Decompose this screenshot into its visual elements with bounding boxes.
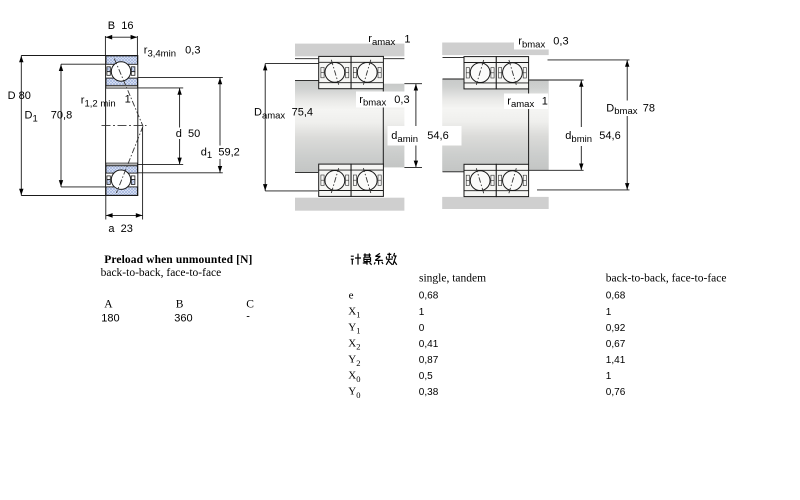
svg-text:X1: X1 bbox=[348, 305, 360, 319]
svg-text:d 50: d 50 bbox=[176, 128, 200, 140]
svg-text:70,8: 70,8 bbox=[51, 110, 72, 122]
svg-text:C: C bbox=[246, 298, 254, 310]
svg-text:back-to-back, face-to-face: back-to-back, face-to-face bbox=[101, 267, 222, 279]
svg-text:360: 360 bbox=[174, 313, 192, 325]
svg-text:1: 1 bbox=[125, 94, 131, 106]
svg-text:single, tandem: single, tandem bbox=[419, 272, 486, 284]
svg-text:ramax: ramax bbox=[368, 33, 395, 48]
svg-text:0,92: 0,92 bbox=[606, 323, 626, 334]
svg-text:0,68: 0,68 bbox=[419, 291, 439, 302]
svg-text:0,67: 0,67 bbox=[606, 339, 626, 350]
svg-text:Y2: Y2 bbox=[348, 354, 360, 368]
svg-text:X2: X2 bbox=[348, 338, 360, 352]
svg-text:0: 0 bbox=[419, 323, 425, 334]
svg-text:54,6: 54,6 bbox=[599, 130, 620, 142]
svg-text:A: A bbox=[104, 298, 113, 310]
svg-text:a 23: a 23 bbox=[108, 223, 132, 235]
svg-text:B 16: B 16 bbox=[108, 20, 134, 32]
svg-text:1: 1 bbox=[542, 95, 548, 107]
svg-text:back-to-back, face-to-face: back-to-back, face-to-face bbox=[606, 272, 727, 284]
svg-text:1: 1 bbox=[419, 307, 425, 318]
svg-text:e: e bbox=[349, 289, 354, 301]
svg-text:1: 1 bbox=[606, 371, 612, 382]
svg-text:Y0: Y0 bbox=[348, 386, 360, 400]
svg-text:54,6: 54,6 bbox=[427, 130, 448, 142]
svg-text:Y1: Y1 bbox=[348, 322, 360, 336]
svg-text:B: B bbox=[176, 298, 184, 310]
svg-text:75,4: 75,4 bbox=[292, 107, 313, 119]
svg-text:0,3: 0,3 bbox=[553, 36, 568, 48]
svg-text:0,87: 0,87 bbox=[419, 355, 439, 366]
svg-text:78: 78 bbox=[643, 102, 655, 114]
svg-text:0,41: 0,41 bbox=[419, 339, 439, 350]
svg-text:Damax: Damax bbox=[254, 107, 285, 122]
svg-text:0,68: 0,68 bbox=[606, 291, 626, 302]
svg-text:D1: D1 bbox=[25, 110, 38, 125]
svg-text:-: - bbox=[246, 311, 250, 323]
svg-text:1,41: 1,41 bbox=[606, 355, 626, 366]
svg-text:r3,4min 0,3: r3,4min 0,3 bbox=[144, 45, 201, 60]
svg-text:180: 180 bbox=[101, 313, 119, 325]
svg-text:0,38: 0,38 bbox=[419, 387, 439, 398]
svg-text:0,76: 0,76 bbox=[606, 387, 626, 398]
svg-text:0,5: 0,5 bbox=[419, 371, 433, 382]
svg-text:0,3: 0,3 bbox=[394, 94, 409, 106]
svg-text:1: 1 bbox=[606, 307, 612, 318]
svg-text:X0: X0 bbox=[348, 370, 360, 384]
svg-text:D 80: D 80 bbox=[8, 90, 31, 102]
svg-text:1: 1 bbox=[404, 34, 410, 46]
svg-text:Preload when unmounted [N]: Preload when unmounted [N] bbox=[104, 254, 252, 266]
